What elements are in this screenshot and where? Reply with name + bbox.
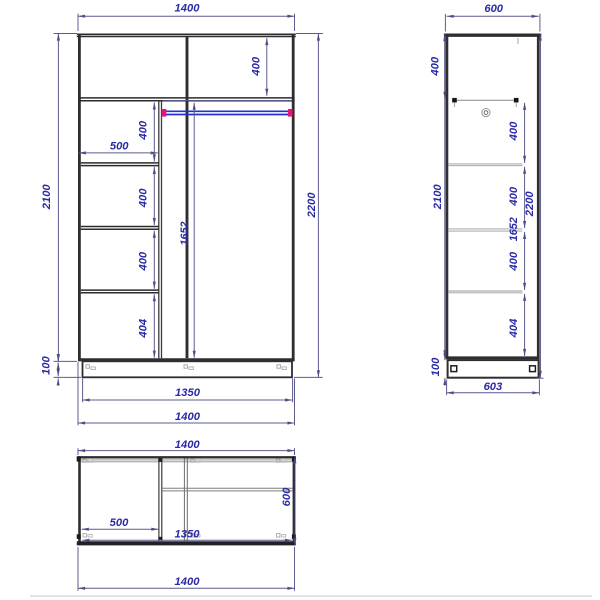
svg-text:1350: 1350 xyxy=(175,387,201,399)
svg-text:400: 400 xyxy=(251,56,263,76)
svg-text:400: 400 xyxy=(429,56,441,76)
svg-text:1400: 1400 xyxy=(175,439,201,451)
svg-text:600: 600 xyxy=(281,487,293,506)
svg-text:400: 400 xyxy=(138,251,150,271)
svg-text:1400: 1400 xyxy=(175,411,201,423)
svg-text:100: 100 xyxy=(430,357,442,376)
svg-text:2100: 2100 xyxy=(432,184,444,211)
svg-text:500: 500 xyxy=(110,517,129,529)
svg-text:400: 400 xyxy=(138,188,150,208)
svg-text:400: 400 xyxy=(508,251,520,271)
svg-text:100: 100 xyxy=(41,355,53,374)
svg-text:2200: 2200 xyxy=(306,192,318,219)
svg-text:1652: 1652 xyxy=(508,217,520,241)
svg-text:400: 400 xyxy=(508,121,520,141)
svg-text:400: 400 xyxy=(138,120,150,140)
svg-text:2200: 2200 xyxy=(524,191,536,218)
svg-text:1400: 1400 xyxy=(175,576,201,588)
svg-text:600: 600 xyxy=(484,3,503,15)
svg-text:1350: 1350 xyxy=(175,528,201,540)
svg-text:404: 404 xyxy=(508,318,520,338)
svg-text:400: 400 xyxy=(508,186,520,206)
svg-text:1400: 1400 xyxy=(175,3,201,15)
svg-text:2100: 2100 xyxy=(41,184,53,211)
svg-text:603: 603 xyxy=(484,381,503,393)
svg-text:1652: 1652 xyxy=(179,221,191,245)
svg-text:404: 404 xyxy=(138,318,150,338)
svg-text:500: 500 xyxy=(110,141,129,153)
